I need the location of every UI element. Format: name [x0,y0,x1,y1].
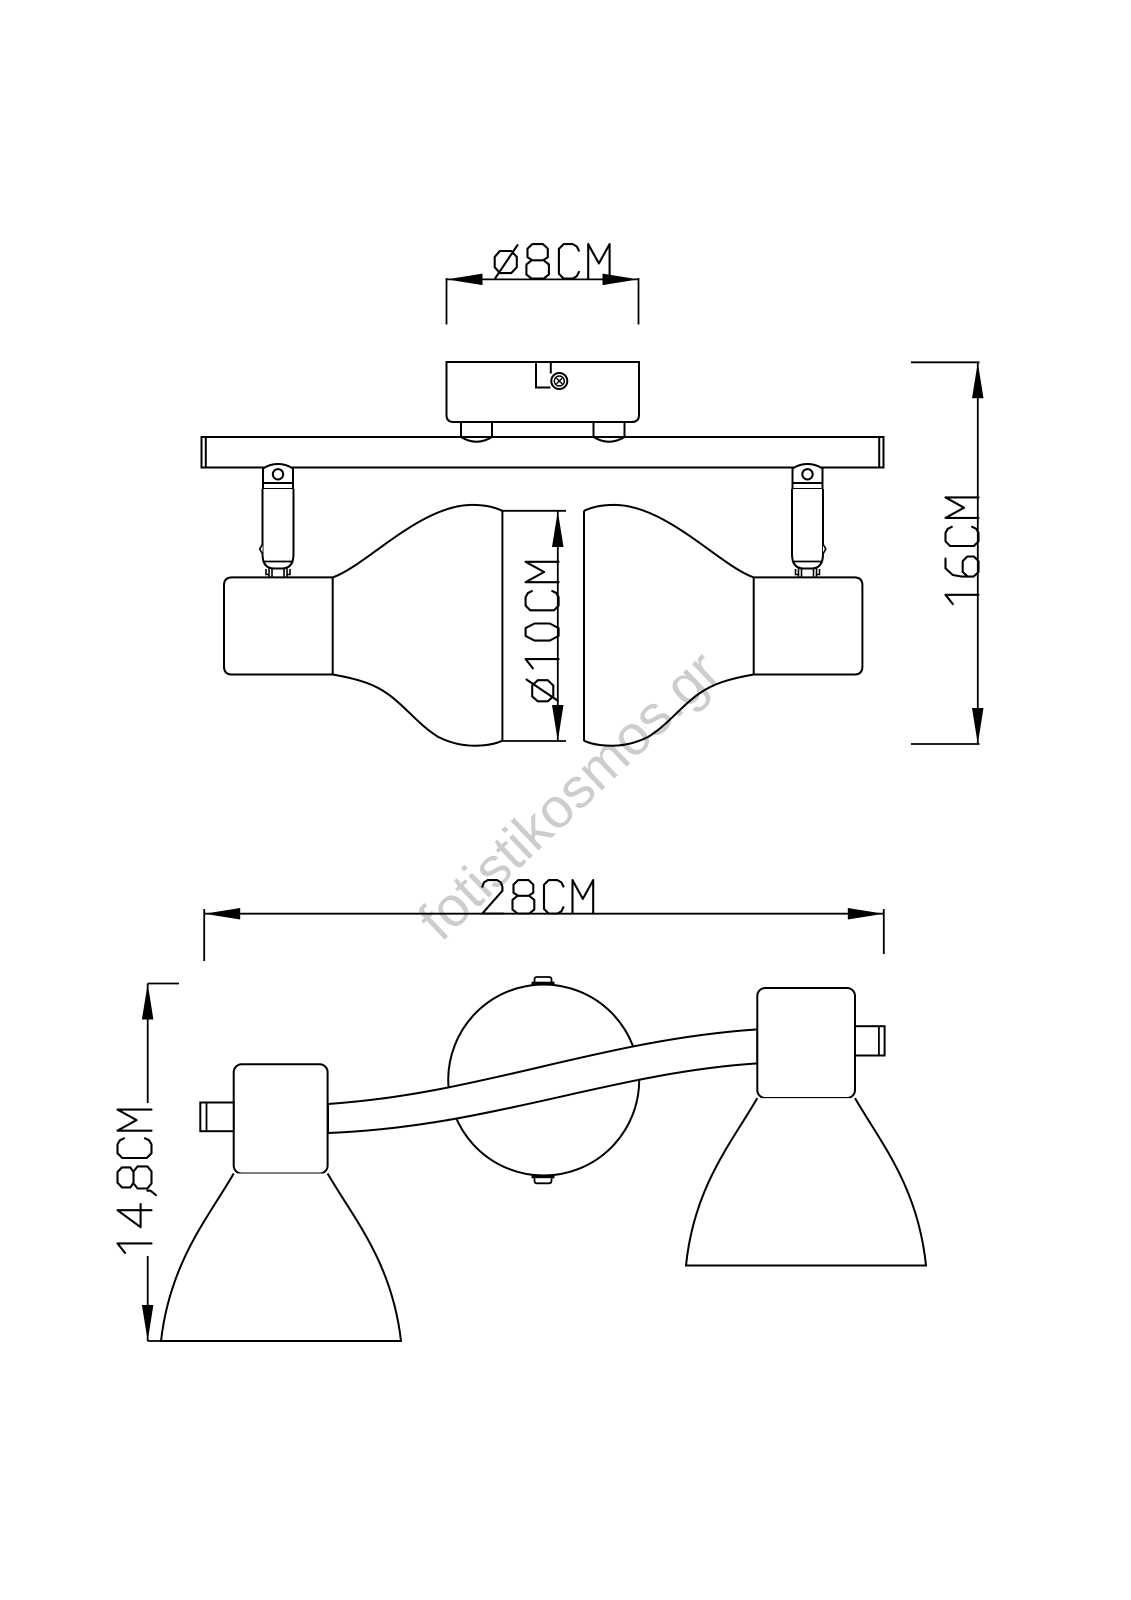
svg-text:fotistikosmos.gr: fotistikosmos.gr [406,638,732,951]
